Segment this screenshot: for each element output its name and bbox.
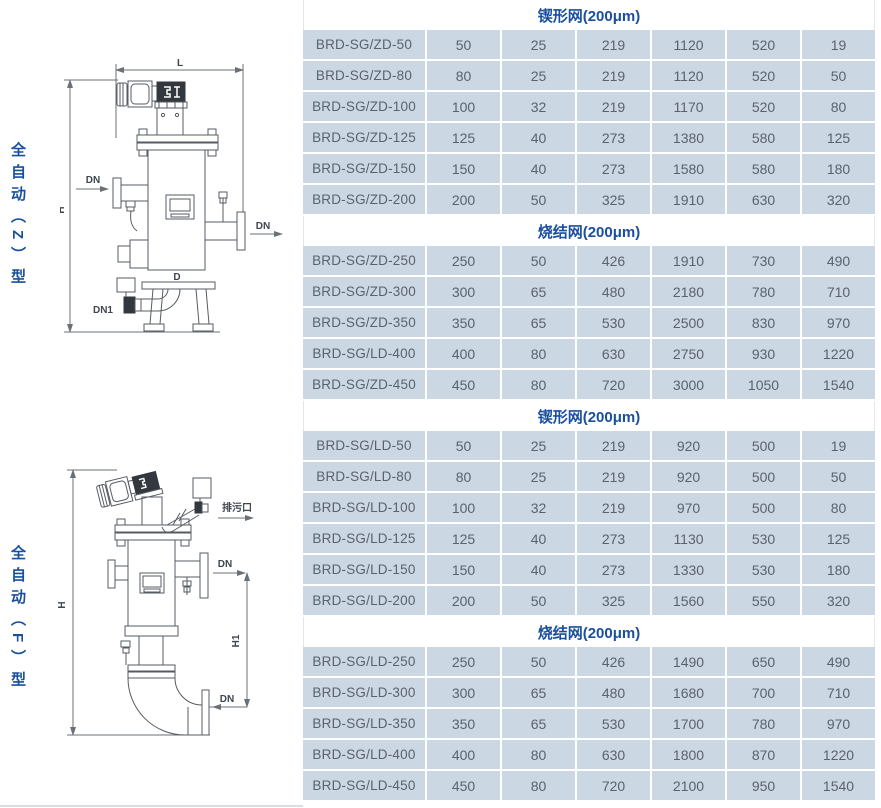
value-cell: 400 [427,339,500,368]
table-row: BRD-SG/LD-125125402731130530125 [303,524,875,553]
value-cell: 490 [802,246,875,275]
model-cell: BRD-SG/ZD-50 [303,30,425,59]
value-cell: 50 [802,61,875,90]
value-cell: 2180 [652,277,725,306]
section-title: 烧结网(200μm) [303,617,875,647]
value-cell: 1380 [652,123,725,152]
value-cell: 1330 [652,555,725,584]
value-cell: 250 [427,647,500,676]
section-title: 锲形网(200μm) [303,0,875,30]
value-cell: 710 [802,277,875,306]
value-cell: 920 [652,431,725,460]
value-cell: 180 [802,154,875,183]
value-cell: 3000 [652,370,725,399]
value-cell: 32 [502,493,575,522]
value-cell: 1490 [652,647,725,676]
value-cell: 1220 [802,339,875,368]
value-cell: 1050 [727,370,800,399]
value-cell: 300 [427,277,500,306]
value-cell: 1540 [802,771,875,800]
value-cell: 1700 [652,709,725,738]
value-cell: 480 [577,678,650,707]
table-row: BRD-SG/LD-1001003221997050080 [303,493,875,522]
value-cell: 650 [727,647,800,676]
value-cell: 25 [502,431,575,460]
model-cell: BRD-SG/LD-100 [303,493,425,522]
value-cell: 80 [802,92,875,121]
value-cell: 65 [502,277,575,306]
value-cell: 219 [577,61,650,90]
value-cell: 32 [502,92,575,121]
value-cell: 1120 [652,61,725,90]
value-cell: 80 [427,61,500,90]
value-cell: 65 [502,308,575,337]
value-cell: 180 [802,555,875,584]
value-cell: 830 [727,308,800,337]
value-cell: 500 [727,431,800,460]
value-cell: 920 [652,462,725,491]
table-row: BRD-SG/ZD-808025219112052050 [303,61,875,90]
value-cell: 1910 [652,185,725,214]
value-cell: 350 [427,308,500,337]
value-cell: 50 [427,431,500,460]
model-cell: BRD-SG/LD-80 [303,462,425,491]
value-cell: 320 [802,185,875,214]
value-cell: 450 [427,370,500,399]
value-cell: 80 [502,771,575,800]
value-cell: 1580 [652,154,725,183]
value-cell: 720 [577,771,650,800]
value-cell: 219 [577,92,650,121]
table-row: BRD-SG/LD-250250504261490650490 [303,647,875,676]
value-cell: 1910 [652,246,725,275]
value-cell: 50 [802,462,875,491]
value-cell: 480 [577,277,650,306]
value-cell: 219 [577,462,650,491]
value-cell: 200 [427,586,500,615]
table-row: BRD-SG/ZD-45045080720300010501540 [303,370,875,399]
model-cell: BRD-SG/LD-200 [303,586,425,615]
value-cell: 1220 [802,740,875,769]
value-cell: 40 [502,524,575,553]
value-cell: 970 [652,493,725,522]
value-cell: 100 [427,92,500,121]
model-cell: BRD-SG/LD-350 [303,709,425,738]
value-cell: 80 [502,339,575,368]
dim-label-dn-out: DN [218,559,232,570]
dim-label-H1: H1 [231,634,242,647]
model-cell: BRD-SG/LD-400 [303,740,425,769]
value-cell: 50 [502,246,575,275]
value-cell: 500 [727,462,800,491]
value-cell: 1120 [652,30,725,59]
model-cell: BRD-SG/ZD-300 [303,277,425,306]
model-cell: BRD-SG/LD-250 [303,647,425,676]
model-cell: BRD-SG/LD-450 [303,771,425,800]
dim-label-dn-in: DN [86,175,100,186]
value-cell: 40 [502,555,575,584]
type-label-f: 全自动（F）型 [7,545,28,693]
table-row: BRD-SG/LD-50502521992050019 [303,431,875,460]
value-cell: 730 [727,246,800,275]
value-cell: 273 [577,154,650,183]
value-cell: 720 [577,370,650,399]
value-cell: 40 [502,123,575,152]
dim-label-D: D [173,272,180,283]
value-cell: 273 [577,123,650,152]
value-cell: 125 [427,524,500,553]
model-cell: BRD-SG/ZD-80 [303,61,425,90]
value-cell: 25 [502,462,575,491]
table-row: BRD-SG/LD-150150402731330530180 [303,555,875,584]
value-cell: 400 [427,740,500,769]
dim-label-L: L [177,58,183,69]
filter-diagram-z-type: L H DN DN D [60,40,300,350]
model-cell: BRD-SG/LD-150 [303,555,425,584]
value-cell: 300 [427,678,500,707]
value-cell: 700 [727,678,800,707]
value-cell: 150 [427,555,500,584]
value-cell: 19 [802,431,875,460]
dim-label-H: H [60,206,67,213]
value-cell: 273 [577,555,650,584]
value-cell: 970 [802,308,875,337]
value-cell: 1680 [652,678,725,707]
value-cell: 500 [727,493,800,522]
value-cell: 780 [727,709,800,738]
value-cell: 80 [502,740,575,769]
model-cell: BRD-SG/LD-125 [303,524,425,553]
value-cell: 426 [577,647,650,676]
value-cell: 1560 [652,586,725,615]
value-cell: 100 [427,493,500,522]
value-cell: 80 [802,493,875,522]
table-row: BRD-SG/ZD-125125402731380580125 [303,123,875,152]
table-row: BRD-SG/ZD-505025219112052019 [303,30,875,59]
section-title: 烧结网(200μm) [303,216,875,246]
value-cell: 1170 [652,92,725,121]
filter-diagram-f-type: H 排污口 DN H1 [55,445,305,805]
value-cell: 219 [577,431,650,460]
value-cell: 780 [727,277,800,306]
value-cell: 325 [577,185,650,214]
value-cell: 930 [727,339,800,368]
value-cell: 950 [727,771,800,800]
model-cell: BRD-SG/LD-300 [303,678,425,707]
table-row: BRD-SG/ZD-10010032219117052080 [303,92,875,121]
model-cell: BRD-SG/ZD-450 [303,370,425,399]
value-cell: 320 [802,586,875,615]
spec-tables: 锲形网(200μm)BRD-SG/ZD-505025219112052019BR… [303,0,875,802]
table-row: BRD-SG/ZD-350350655302500830970 [303,308,875,337]
value-cell: 200 [427,185,500,214]
value-cell: 50 [502,185,575,214]
model-cell: BRD-SG/ZD-150 [303,154,425,183]
dim-label-H: H [57,601,68,608]
value-cell: 2750 [652,339,725,368]
dim-label-dn-out: DN [256,221,270,232]
dim-label-DN1: DN1 [93,305,113,316]
value-cell: 350 [427,709,500,738]
section-title: 锲形网(200μm) [303,401,875,431]
drain-port-label: 排污口 [222,501,252,514]
value-cell: 630 [577,740,650,769]
value-cell: 520 [727,92,800,121]
value-cell: 65 [502,709,575,738]
model-cell: BRD-SG/ZD-100 [303,92,425,121]
table-row: BRD-SG/LD-4004008063018008701220 [303,740,875,769]
value-cell: 520 [727,61,800,90]
value-cell: 250 [427,246,500,275]
value-cell: 219 [577,30,650,59]
value-cell: 1800 [652,740,725,769]
type-label-z: 全自动（Z）型 [7,142,28,290]
value-cell: 25 [502,30,575,59]
model-cell: BRD-SG/LD-400 [303,339,425,368]
value-cell: 50 [427,30,500,59]
model-cell: BRD-SG/ZD-250 [303,246,425,275]
model-cell: BRD-SG/ZD-200 [303,185,425,214]
value-cell: 530 [727,524,800,553]
table-row: BRD-SG/ZD-300300654802180780710 [303,277,875,306]
value-cell: 19 [802,30,875,59]
value-cell: 40 [502,154,575,183]
value-cell: 580 [727,154,800,183]
model-cell: BRD-SG/ZD-350 [303,308,425,337]
value-cell: 630 [727,185,800,214]
value-cell: 970 [802,709,875,738]
table-row: BRD-SG/LD-350350655301700780970 [303,709,875,738]
value-cell: 450 [427,771,500,800]
value-cell: 325 [577,586,650,615]
value-cell: 219 [577,493,650,522]
model-cell: BRD-SG/LD-50 [303,431,425,460]
value-cell: 710 [802,678,875,707]
value-cell: 530 [577,709,650,738]
table-row: BRD-SG/ZD-250250504261910730490 [303,246,875,275]
value-cell: 1540 [802,370,875,399]
value-cell: 550 [727,586,800,615]
value-cell: 50 [502,586,575,615]
table-row: BRD-SG/LD-200200503251560550320 [303,586,875,615]
table-row: BRD-SG/LD-4504508072021009501540 [303,771,875,800]
value-cell: 2500 [652,308,725,337]
dim-label-dn-in: DN [220,694,234,705]
value-cell: 1130 [652,524,725,553]
value-cell: 490 [802,647,875,676]
value-cell: 630 [577,339,650,368]
model-cell: BRD-SG/ZD-125 [303,123,425,152]
value-cell: 25 [502,61,575,90]
value-cell: 426 [577,246,650,275]
value-cell: 2100 [652,771,725,800]
value-cell: 273 [577,524,650,553]
table-row: BRD-SG/LD-80802521992050050 [303,462,875,491]
value-cell: 125 [802,524,875,553]
value-cell: 870 [727,740,800,769]
value-cell: 150 [427,154,500,183]
table-row: BRD-SG/ZD-150150402731580580180 [303,154,875,183]
value-cell: 520 [727,30,800,59]
table-row: BRD-SG/LD-300300654801680700710 [303,678,875,707]
value-cell: 80 [427,462,500,491]
value-cell: 50 [502,647,575,676]
value-cell: 580 [727,123,800,152]
value-cell: 125 [802,123,875,152]
page-divider [0,805,303,807]
value-cell: 65 [502,678,575,707]
value-cell: 125 [427,123,500,152]
value-cell: 80 [502,370,575,399]
table-row: BRD-SG/ZD-200200503251910630320 [303,185,875,214]
table-row: BRD-SG/LD-4004008063027509301220 [303,339,875,368]
value-cell: 530 [727,555,800,584]
value-cell: 530 [577,308,650,337]
